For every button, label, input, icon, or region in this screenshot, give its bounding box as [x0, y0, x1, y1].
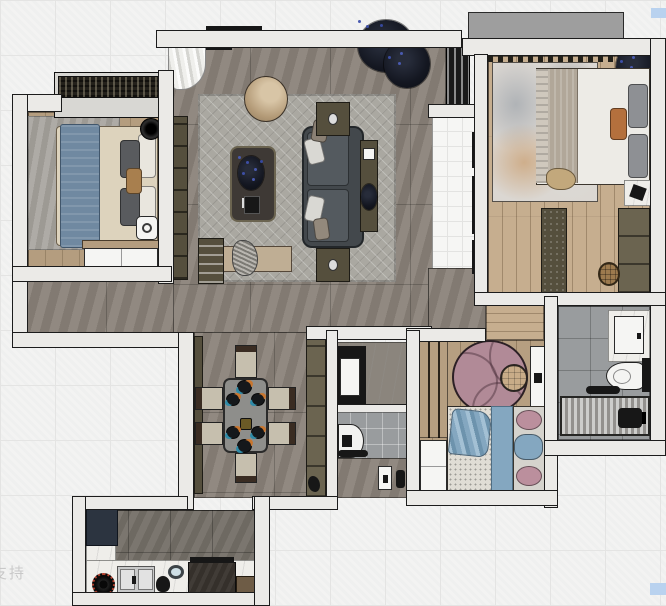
- floor-plan: 支持: [0, 0, 666, 606]
- coffee-table-plant: [238, 156, 264, 190]
- master-pillow-grey-1: [628, 84, 648, 128]
- wall-kids-bottom: [406, 490, 558, 506]
- dining-chair-south: [235, 453, 257, 483]
- wall-kitchen-left: [72, 496, 86, 606]
- kids-side-cabinet: [530, 346, 545, 412]
- master-wardrobe-left: [541, 208, 567, 294]
- wall-master-bottom: [474, 292, 666, 306]
- wall-right-outer: [650, 38, 666, 450]
- wall-bed1-right: [158, 70, 174, 284]
- kids-pouf: [500, 364, 528, 392]
- place-setting-2: [227, 394, 239, 405]
- kids-wardrobe-slats: [418, 340, 448, 438]
- console-decor-box: [363, 148, 375, 160]
- shower-drain-panel: [378, 466, 392, 490]
- cooktop-unit: [188, 562, 236, 594]
- cabinet-figurine: [308, 476, 320, 492]
- wall-kitchen-right: [254, 496, 270, 606]
- wall-master-left: [474, 54, 488, 294]
- place-setting-5: [252, 427, 264, 438]
- tv-console: [172, 116, 188, 280]
- kitchen-plate: [168, 565, 184, 579]
- kids-wardrobe-white: [420, 440, 447, 492]
- place-setting-6: [238, 440, 251, 452]
- wall-left-outer: [12, 94, 28, 348]
- bathtub-faucet: [618, 408, 642, 428]
- corridor-wood-floor: [486, 304, 544, 340]
- dining-chair-east-1: [268, 387, 296, 410]
- kids-pillow-pink-1: [516, 410, 542, 430]
- table-centerpiece: [240, 418, 252, 430]
- wall-bathright-left: [544, 296, 558, 508]
- living-room-floor-extension: [26, 278, 174, 334]
- wall-lowerleft-bottom: [12, 332, 194, 348]
- watermark-swatch-top-right: [651, 8, 666, 18]
- master-bed-fold-strip: [536, 69, 548, 183]
- kids-pillow-pink-2: [516, 466, 542, 486]
- bath-right-mat: [586, 386, 620, 394]
- console-plant: [361, 184, 377, 210]
- wall-bath-kids-divider: [406, 330, 420, 502]
- kids-bed-blanket: [448, 408, 493, 458]
- watermark-text: 支持: [0, 562, 26, 583]
- place-setting-3: [252, 394, 264, 405]
- place-setting-4: [227, 427, 239, 438]
- wall-kitchen-bottom: [72, 592, 270, 606]
- bath-mid-mat: [338, 450, 368, 457]
- wall-kitchen-top: [72, 496, 188, 510]
- side-table-south: [316, 248, 350, 282]
- fridge: [86, 508, 118, 546]
- dining-tall-cabinet: [306, 330, 326, 498]
- shower-handle: [396, 470, 405, 488]
- living-shelf-cabinet: [198, 238, 224, 284]
- master-pillow-grey-2: [628, 134, 648, 178]
- wall-dining-left: [178, 332, 194, 510]
- dining-chair-west-1: [195, 387, 223, 410]
- wall-living-top: [156, 30, 462, 48]
- dining-chair-west-2: [195, 422, 223, 445]
- coffee-table-tray: [244, 196, 260, 214]
- master-bed-blanket: [548, 69, 578, 183]
- bed1-pillow-tan: [126, 168, 142, 194]
- dining-chair-north: [235, 345, 257, 378]
- wall-bed1-bottom: [12, 266, 172, 282]
- bed-blue-throw: [60, 124, 100, 248]
- wardrobe-clothes-rail: [58, 76, 160, 98]
- kitchen-sink: [117, 566, 155, 593]
- bedroom1-tray: [136, 216, 158, 240]
- bedroom1-dresser: [84, 248, 158, 267]
- sofa-pillow-grey: [313, 217, 331, 241]
- place-setting-1: [238, 381, 251, 393]
- watermark-swatch-bottom-right: [650, 583, 666, 595]
- lounge-armchair: [244, 76, 288, 122]
- master-foot-throw: [546, 168, 576, 190]
- wall-bathright-bottom: [544, 440, 666, 456]
- wall-master-top: [462, 38, 666, 56]
- kids-bed-runner: [491, 406, 513, 492]
- kitchen-pot: [156, 576, 170, 592]
- kids-pillow-blue: [514, 434, 543, 460]
- master-wardrobe-right: [618, 208, 650, 294]
- master-pillow-orange: [610, 108, 627, 140]
- bench-sculpture: [232, 240, 258, 276]
- entry-foyer-floor: [432, 116, 476, 272]
- dining-sideboard-strip: [194, 336, 203, 494]
- bath-right-sink: [614, 316, 644, 354]
- master-nightstand: [624, 180, 651, 206]
- dining-chair-east-2: [268, 422, 296, 445]
- bath-mid-mirror: [340, 358, 360, 396]
- range-hood-bar: [190, 557, 234, 563]
- rattan-basket: [598, 262, 620, 286]
- side-table-north: [316, 102, 350, 136]
- wall-bath-dining-divider: [326, 330, 338, 498]
